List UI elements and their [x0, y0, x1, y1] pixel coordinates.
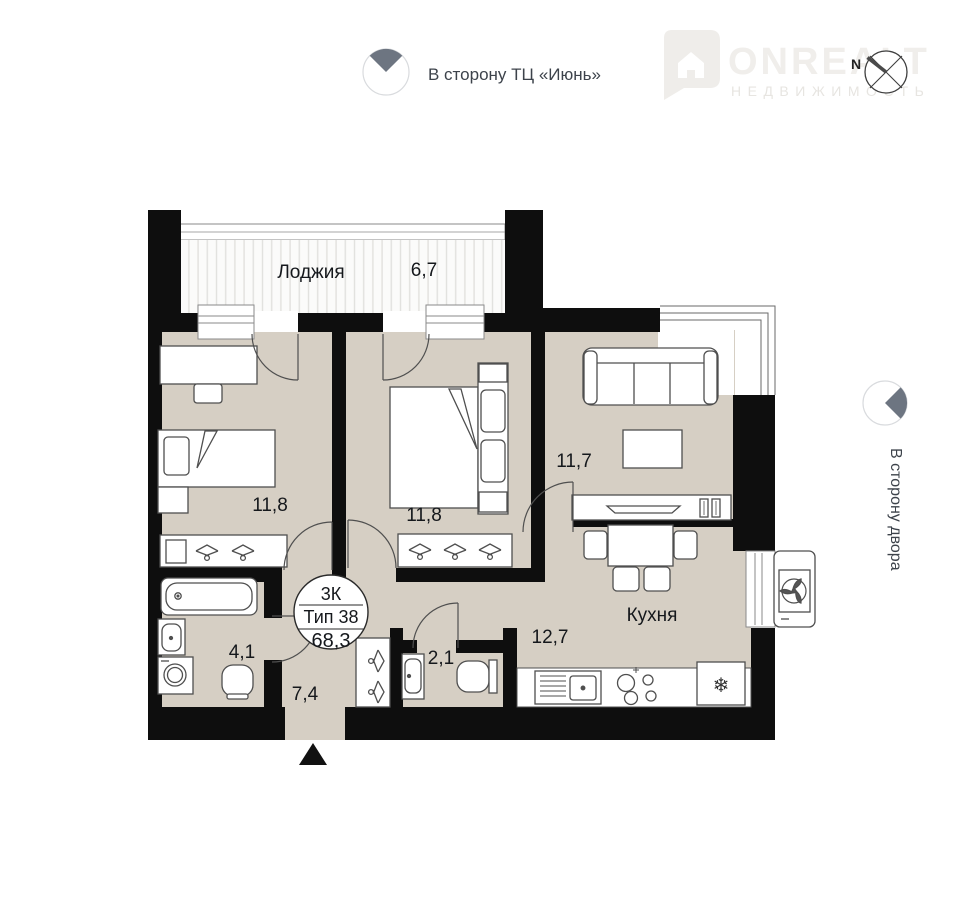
- wall-segment: [264, 660, 282, 707]
- wall-segment: [180, 313, 200, 332]
- direction-side-label: В сторону двора: [887, 448, 904, 571]
- floorplan-page: ONREALT НЕДВИЖИМОСТЬ В сторону ТЦ «Июнь»…: [0, 0, 960, 910]
- tv-icon: [607, 506, 680, 513]
- pillow: [164, 437, 189, 475]
- wall-segment: [264, 565, 282, 618]
- loggia-name: Лоджия: [277, 262, 344, 283]
- floor-entrance: [285, 707, 345, 740]
- nightstand: [158, 487, 188, 513]
- wc-sink: [402, 654, 424, 699]
- chair: [613, 567, 639, 591]
- bathroom-sink: [158, 619, 185, 655]
- coffee-table: [623, 430, 682, 468]
- loggia-area: 6,7: [411, 260, 437, 281]
- direction-indicator-side: В сторону двора: [863, 381, 907, 571]
- room-loggia: Лоджия 6,7: [180, 224, 505, 314]
- hallway-area: 7,4: [292, 684, 319, 705]
- wc-area: 2,1: [428, 648, 454, 669]
- sofa: [583, 348, 718, 405]
- living-room-area: 11,7: [556, 451, 592, 472]
- wall-segment: [332, 332, 346, 582]
- kitchen-area: 12,7: [532, 627, 569, 648]
- chair: [194, 384, 222, 403]
- wall-segment: [396, 568, 531, 582]
- wardrobe: [398, 534, 512, 567]
- bedroom-left-area: 11,8: [252, 495, 288, 516]
- window: [746, 551, 775, 627]
- summary-type: Тип 38: [303, 607, 358, 627]
- wall-segment: [390, 628, 403, 707]
- window: [198, 305, 254, 339]
- window: [426, 305, 484, 339]
- wardrobe: [160, 535, 287, 567]
- entrance-arrow-icon: [299, 743, 327, 765]
- wall-segment: [296, 313, 385, 332]
- vent-unit: [774, 551, 815, 627]
- brand-house-icon: [664, 30, 720, 100]
- direction-indicator-top: В сторону ТЦ «Июнь»: [363, 49, 601, 95]
- wall-segment: [543, 308, 660, 332]
- wall-segment: [456, 640, 503, 653]
- snowflake-icon: ❄: [713, 675, 730, 697]
- wall-segment: [733, 395, 775, 551]
- kitchen-counter: ❄: [517, 662, 751, 707]
- wall-segment: [503, 628, 517, 707]
- kitchen-name: Кухня: [627, 605, 678, 626]
- fridge: ❄: [697, 662, 745, 705]
- chair: [584, 531, 607, 559]
- wall-segment: [148, 210, 181, 332]
- toilet: [457, 660, 497, 693]
- chair: [644, 567, 670, 591]
- closet: [356, 638, 390, 707]
- door-opening: [383, 311, 430, 332]
- wall-segment: [531, 332, 545, 582]
- compass-north-label: N: [851, 56, 861, 72]
- bedroom-middle-area: 11,8: [406, 505, 442, 526]
- tv-stand: [572, 495, 731, 520]
- bathroom-area: 4,1: [229, 642, 255, 663]
- summary-total-area: 68,3: [312, 630, 351, 652]
- direction-top-label: В сторону ТЦ «Июнь»: [428, 65, 601, 84]
- kitchen-sink: [535, 671, 601, 704]
- wall-segment: [148, 707, 285, 740]
- nightstand: [479, 492, 507, 512]
- wall-segment: [403, 640, 417, 653]
- bathtub: [161, 578, 257, 615]
- pillow: [481, 440, 505, 482]
- washing-machine: [158, 657, 193, 694]
- wall-segment: [345, 707, 775, 740]
- door-opening: [252, 311, 298, 332]
- wall-segment: [505, 210, 543, 332]
- chair: [674, 531, 697, 559]
- pillow: [481, 390, 505, 432]
- toilet: [222, 665, 253, 699]
- nightstand: [479, 364, 507, 382]
- summary-rooms: 3К: [321, 584, 342, 604]
